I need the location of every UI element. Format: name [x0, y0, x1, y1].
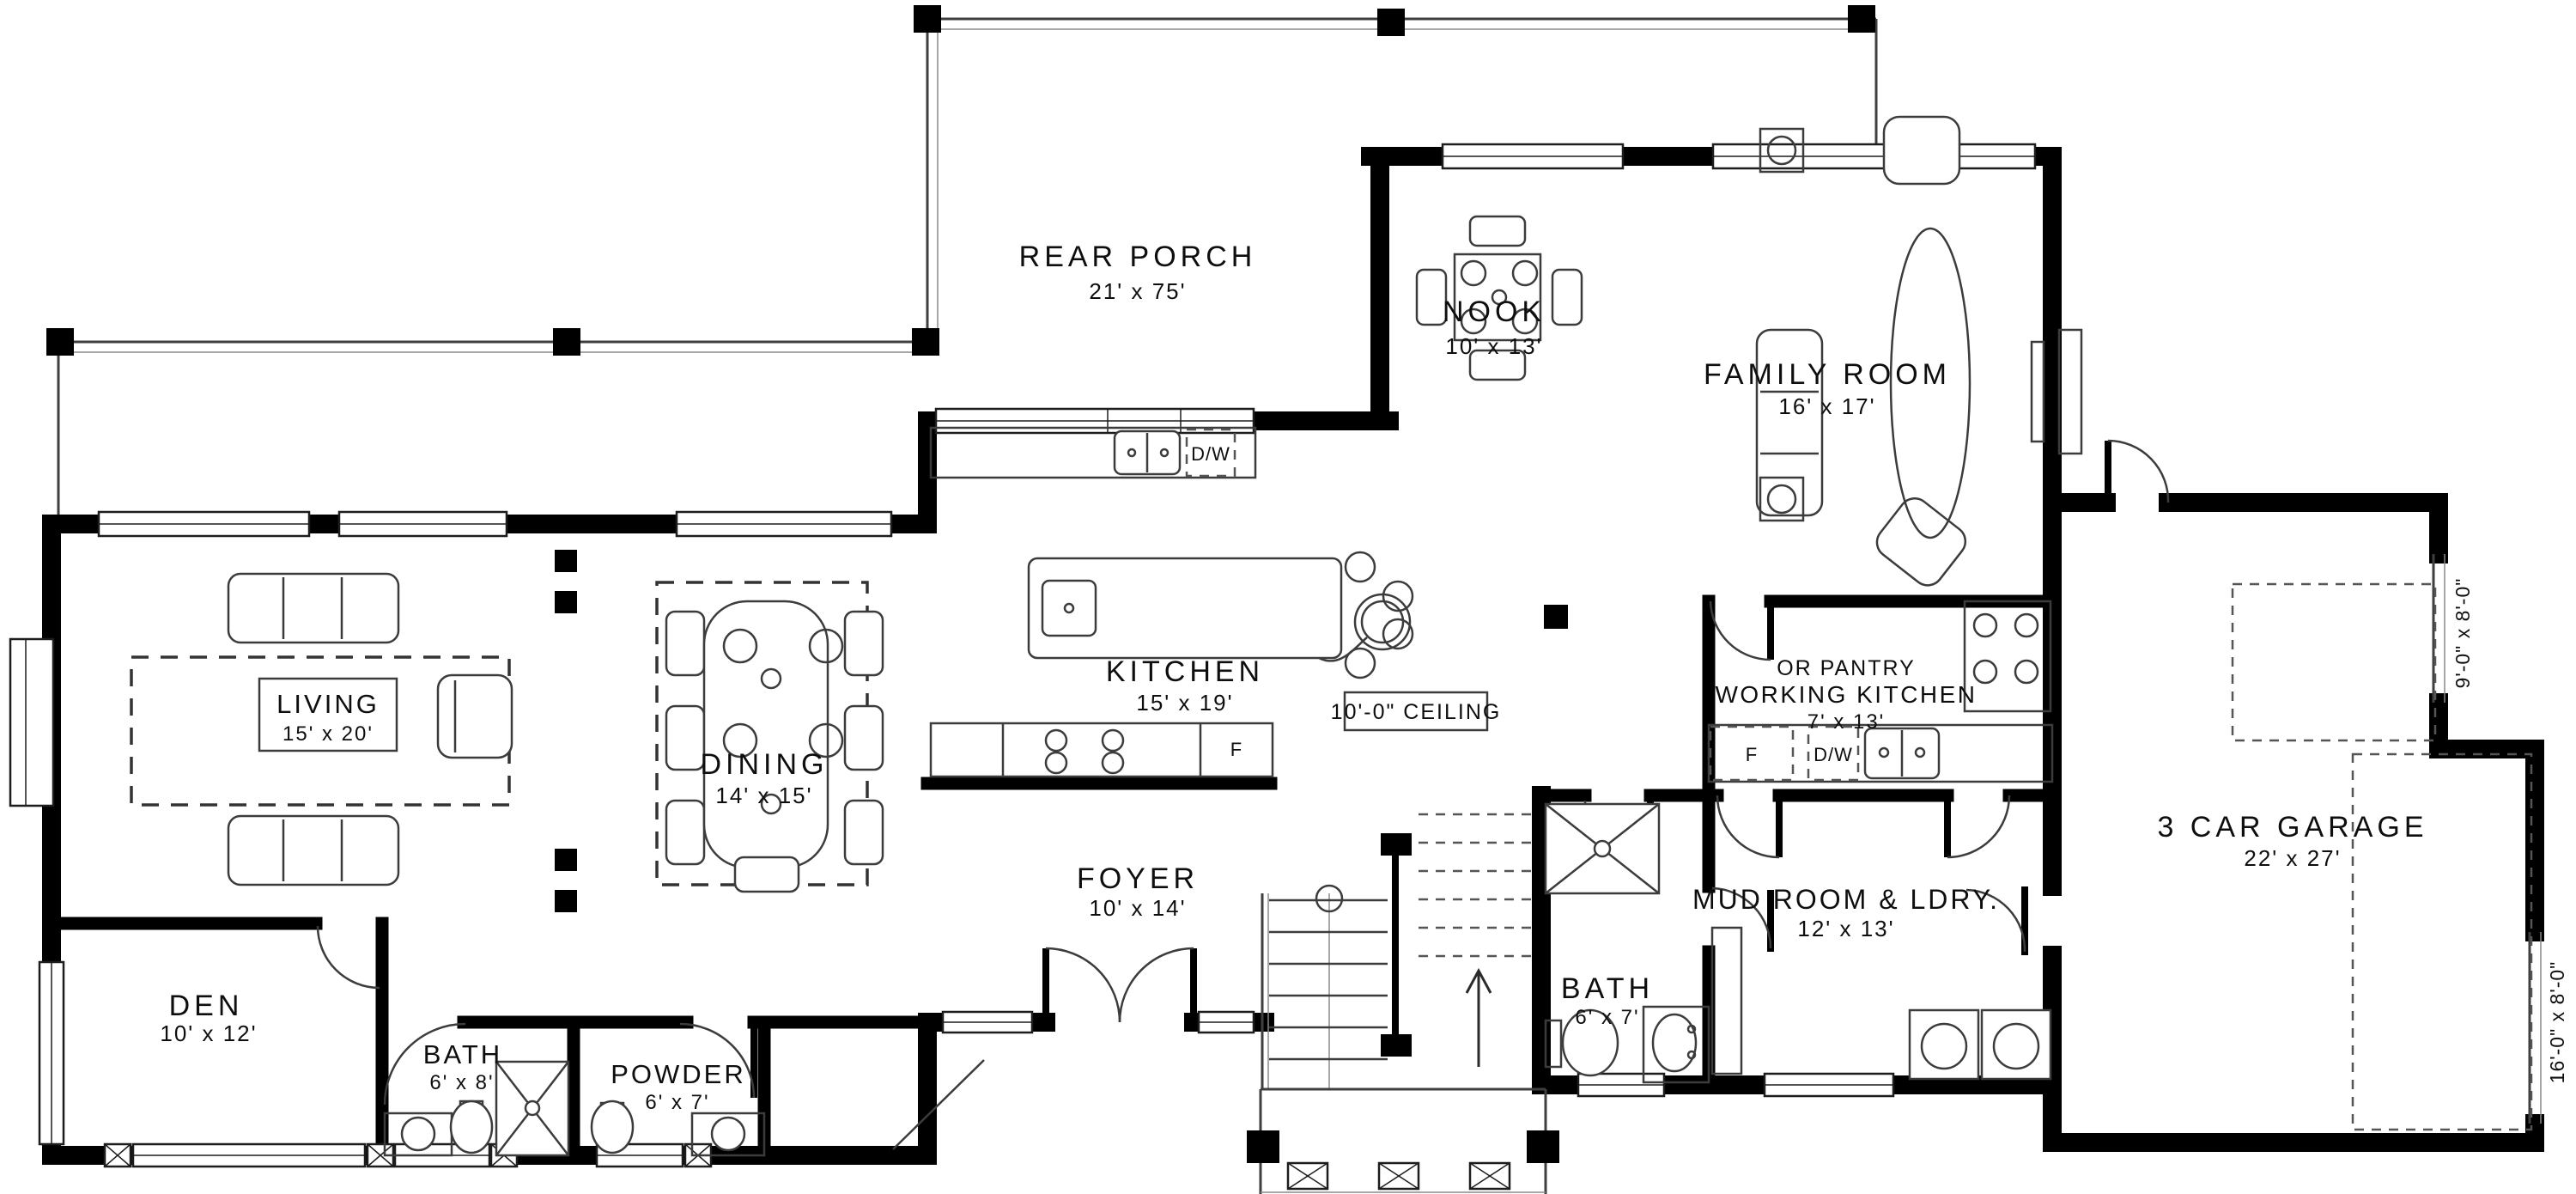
dining-table	[704, 601, 828, 868]
fridge-label: F	[1230, 739, 1242, 760]
toilet	[592, 1101, 633, 1153]
column	[1544, 605, 1568, 629]
garage-door-track	[2233, 584, 2435, 740]
shower	[1546, 804, 1659, 893]
window	[1578, 1074, 1664, 1096]
windows	[10, 144, 2035, 1167]
dining-chair	[845, 612, 883, 675]
hatch-mark	[105, 1144, 131, 1167]
double-sink	[1865, 728, 1939, 778]
stair-direction-arrow	[1467, 971, 1491, 1067]
window	[1443, 144, 1623, 168]
stair-newel	[1381, 833, 1412, 856]
room-dims-working-kitchen: 7' x 13'	[1807, 710, 1886, 734]
window	[339, 512, 507, 536]
room-label-dining: DINING	[701, 748, 829, 781]
ceiling-note: 10'-0" CEILING	[1331, 692, 1502, 730]
armchair	[438, 675, 512, 758]
window	[1765, 1074, 1893, 1096]
mud-room-door-right	[1947, 795, 2009, 857]
dining-chair	[666, 801, 704, 864]
front-double-door	[1046, 948, 1194, 1022]
room-label-living: LIVING	[276, 689, 380, 719]
bay-window	[10, 639, 53, 806]
room-label-rear-porch: REAR PORCH	[1019, 241, 1257, 273]
room-dims-living: 15' x 20'	[283, 722, 374, 746]
mud-room-door-left	[1717, 795, 1779, 857]
kitchen-bottom-counter	[931, 723, 1273, 777]
garage-door-size-double: 16'-0" x 8'-0"	[2546, 961, 2568, 1084]
vanity-sink	[1643, 1007, 1709, 1082]
nook-chair	[1470, 216, 1525, 246]
kitchen-fixtures	[931, 428, 1413, 777]
room-label-foyer: FOYER	[1077, 862, 1199, 895]
mud-room-fixtures	[1712, 928, 2050, 1079]
room-label-bath: BATH	[423, 1039, 502, 1069]
dining-furniture	[657, 582, 883, 892]
column	[555, 890, 577, 912]
hatch-mark	[1379, 1163, 1419, 1189]
bar-stool	[1383, 582, 1413, 611]
room-label-family-room: FAMILY ROOM	[1704, 358, 1951, 391]
hall-bath-fixtures	[1546, 804, 1709, 1082]
garage-door-size-single: 9'-0" x 8'-0"	[2451, 578, 2474, 689]
floor-plan-canvas: REAR PORCH 21' x 75' NOOK 10' x 13' FAMI…	[0, 0, 2576, 1194]
porch-post	[1377, 9, 1405, 36]
column	[555, 591, 577, 613]
fridge-label: F	[1746, 744, 1758, 765]
room-dims-rear-porch: 21' x 75'	[1089, 278, 1186, 304]
room-label-garage: 3 CAR GARAGE	[2157, 811, 2427, 844]
nook-chair	[1552, 270, 1582, 325]
room-dims-bath: 6' x 8'	[429, 1071, 494, 1094]
room-dims-family-room: 16' x 17'	[1778, 393, 1875, 419]
room-dims-dining: 14' x 15'	[715, 783, 812, 808]
sidelight-window	[1199, 1012, 1254, 1033]
porch-post	[1527, 1130, 1559, 1163]
sidelight-window	[943, 1012, 1032, 1033]
ceiling-note-text: 10'-0" CEILING	[1331, 700, 1502, 724]
sofa	[228, 574, 398, 643]
island-sink	[1042, 581, 1096, 636]
toilet	[451, 1101, 492, 1153]
kitchen-sink	[1115, 431, 1180, 474]
column	[555, 550, 577, 572]
room-dims-kitchen: 15' x 19'	[1136, 690, 1233, 716]
porch-post	[46, 328, 74, 356]
room-label-kitchen: KITCHEN	[1106, 655, 1264, 688]
rear-porch-outline	[46, 5, 1876, 524]
room-dims-powder: 6' x 7'	[645, 1091, 709, 1114]
den-door	[318, 926, 380, 988]
window	[99, 512, 309, 536]
dishwasher-label: D/W	[1814, 744, 1853, 765]
entry-closet-door	[893, 1060, 984, 1149]
room-dims-foyer: 10' x 14'	[1089, 895, 1186, 921]
sofa	[228, 816, 398, 885]
dining-chair	[666, 612, 704, 675]
nook-chair	[1417, 270, 1446, 325]
dining-chair	[666, 706, 704, 770]
room-label-working-kitchen: WORKING KITCHEN	[1715, 681, 1977, 708]
room-dims-nook: 10' x 13'	[1445, 333, 1542, 359]
hatch-mark	[1470, 1163, 1510, 1189]
window	[677, 512, 891, 536]
room-note-working-kitchen: OR PANTRY	[1777, 656, 1916, 680]
room-label-hall-bath: BATH	[1561, 972, 1654, 1005]
column	[555, 849, 577, 871]
room-dims-den: 10' x 12'	[160, 1020, 257, 1046]
dining-chair	[845, 706, 883, 770]
floor-plan-drawing: REAR PORCH 21' x 75' NOOK 10' x 13' FAMI…	[0, 0, 2576, 1194]
room-label-nook: NOOK	[1443, 295, 1546, 328]
dryer	[1982, 1010, 2050, 1079]
window	[133, 1144, 365, 1167]
hatch-mark	[1288, 1163, 1327, 1189]
shower	[496, 1062, 568, 1155]
dining-chair	[735, 857, 799, 892]
room-dims-mud-room: 12' x 13'	[1797, 916, 1894, 941]
working-kitchen-door	[1710, 601, 1771, 660]
room-dims-hall-bath: 6' x 7'	[1575, 1006, 1639, 1029]
bench	[1712, 928, 1741, 1074]
porch-post	[1848, 5, 1875, 33]
dishwasher-label: D/W	[1191, 443, 1230, 465]
room-label-den: DEN	[169, 990, 244, 1022]
family-room-furniture	[1757, 117, 2081, 592]
dining-chair	[845, 801, 883, 864]
bar-stool	[1346, 552, 1375, 582]
porch-post	[912, 328, 939, 356]
range-burners	[1974, 614, 2038, 683]
armchair	[1884, 117, 1959, 184]
washer	[1910, 1010, 1978, 1079]
porch-post	[1247, 1130, 1279, 1163]
range-burners	[1046, 730, 1123, 773]
porch-post	[553, 328, 580, 356]
armchair	[1871, 492, 1971, 592]
staircase	[1262, 814, 1537, 1089]
porch-post	[914, 5, 941, 33]
pendant-light	[1319, 594, 1410, 661]
room-label-powder: POWDER	[611, 1059, 746, 1089]
room-dims-garage: 22' x 27'	[2244, 845, 2341, 871]
window	[39, 962, 64, 1144]
room-label-mud-room: MUD ROOM & LDRY.	[1692, 884, 2000, 915]
stair-newel	[1381, 1034, 1412, 1057]
